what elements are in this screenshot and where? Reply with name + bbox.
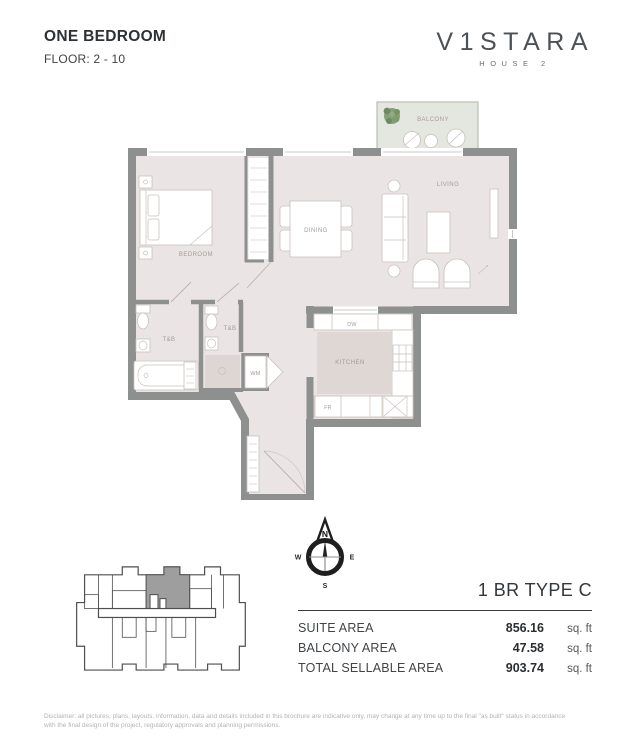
coffee-table (427, 212, 450, 253)
area-value: 856.16 (478, 619, 544, 638)
tv-console (490, 189, 498, 238)
brand-logo: V1STARA HOUSE 2 (418, 30, 594, 68)
area-row-total: TOTAL SELLABLE AREA 903.74 sq. ft (298, 659, 592, 679)
divider-rule (298, 610, 592, 611)
area-label: TOTAL SELLABLE AREA (298, 659, 478, 678)
bath-main-label: T&B (162, 337, 175, 343)
area-summary: 1 BR TYPE C SUITE AREA 856.16 sq. ft BAL… (298, 580, 592, 679)
compass-w-label: W (295, 555, 302, 562)
area-value: 47.58 (478, 639, 544, 658)
brand-subname: HOUSE 2 (418, 59, 594, 68)
disclaimer-line-1: Disclaimer: all pictures, plans, layouts… (44, 712, 600, 721)
area-row-suite: SUITE AREA 856.16 sq. ft (298, 619, 592, 639)
kitchen: DW FR KITCHEN (314, 314, 413, 418)
area-unit: sq. ft (544, 660, 592, 679)
bath-second-label: T&B (223, 326, 236, 332)
compass-n-label: N (322, 529, 328, 539)
kitchen-label: KITCHEN (335, 360, 365, 366)
shower (205, 355, 240, 388)
floor-range: FLOOR: 2 - 10 (44, 52, 166, 66)
brochure-page: ONE BEDROOM FLOOR: 2 - 10 V1STARA HOUSE … (0, 0, 638, 750)
dining: DINING (280, 201, 352, 257)
balcony-area: BALCONY (377, 102, 478, 152)
balcony-chair-left (404, 132, 421, 149)
unit-type-title: 1 BR TYPE C (298, 580, 592, 601)
washer-label: WM (250, 371, 260, 377)
area-label: SUITE AREA (298, 619, 478, 638)
area-unit: sq. ft (544, 620, 592, 639)
lounge-chair-1 (413, 259, 439, 288)
keyplan (62, 551, 252, 675)
balcony-chair-right (447, 129, 465, 147)
closet (249, 158, 269, 259)
floorplan: BALCONY (120, 85, 520, 500)
area-row-balcony: BALCONY AREA 47.58 sq. ft (298, 639, 592, 659)
balcony-label: BALCONY (417, 117, 449, 123)
fridge-label: FR (324, 405, 332, 411)
page-title: ONE BEDROOM (44, 28, 166, 46)
disclaimer: Disclaimer: all pictures, plans, layouts… (44, 712, 600, 730)
living-label: LIVING (437, 182, 459, 188)
compass-e-label: E (350, 555, 355, 562)
brand-name: V1STARA (418, 30, 594, 54)
area-unit: sq. ft (544, 640, 592, 659)
keyplan-corridor (98, 609, 215, 618)
area-label: BALCONY AREA (298, 639, 478, 658)
dishwasher-label: DW (347, 322, 357, 328)
plant-icon (384, 108, 400, 124)
bedroom-label: BEDROOM (179, 252, 213, 258)
balcony-table (425, 135, 438, 148)
dining-label: DINING (304, 228, 328, 234)
sofa (382, 194, 408, 262)
area-value: 903.74 (478, 659, 544, 678)
lounge-chair-2 (444, 259, 470, 288)
disclaimer-line-2: with the final design of the project, re… (44, 721, 600, 730)
header: ONE BEDROOM FLOOR: 2 - 10 (44, 28, 166, 66)
